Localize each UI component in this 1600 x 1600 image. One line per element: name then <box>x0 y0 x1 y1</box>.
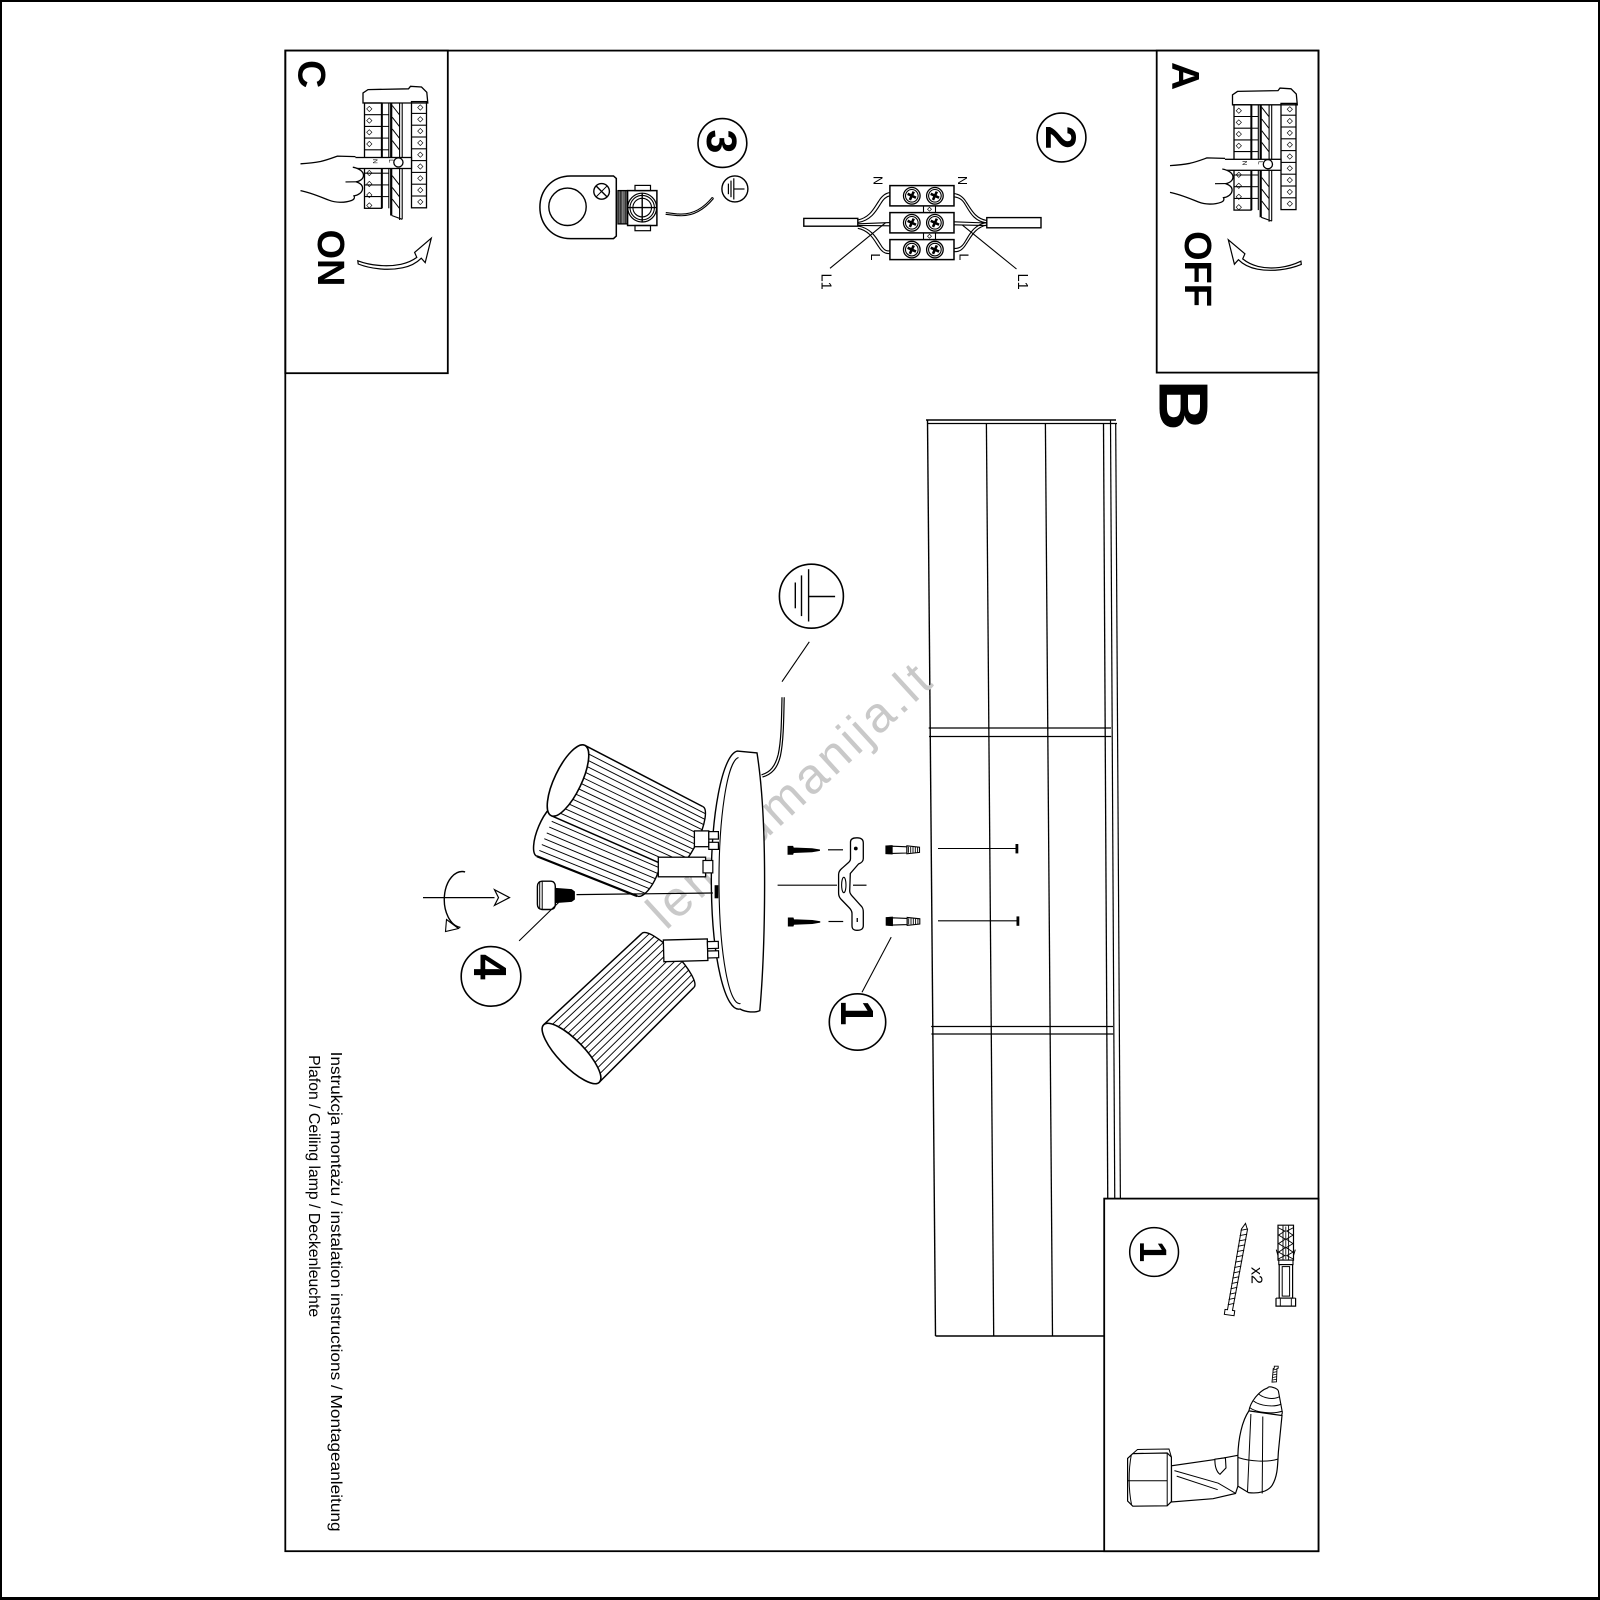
svg-text:OFF: OFF <box>1176 231 1218 307</box>
svg-text:L: L <box>868 254 882 261</box>
svg-text:N: N <box>871 176 885 185</box>
svg-text:Instrukcja montażu / instalati: Instrukcja montażu / instalation instruc… <box>327 1052 344 1532</box>
svg-text:lempumanija.lt: lempumanija.lt <box>636 650 945 939</box>
svg-text:ON: ON <box>309 230 351 287</box>
svg-text:B: B <box>1145 380 1223 431</box>
svg-text:N: N <box>955 176 969 185</box>
svg-text:2: 2 <box>1036 126 1084 150</box>
svg-text:4: 4 <box>464 954 516 980</box>
svg-text:L1: L1 <box>818 274 834 290</box>
svg-text:x2: x2 <box>1248 1267 1265 1284</box>
svg-text:N: N <box>1240 161 1247 166</box>
svg-text:Plafon / Ceiling lamp / Decken: Plafon / Ceiling lamp / Deckenleuchte <box>305 1055 322 1317</box>
svg-text:1: 1 <box>1131 1241 1173 1262</box>
svg-text:A: A <box>1163 62 1206 90</box>
svg-text:1: 1 <box>831 1000 883 1026</box>
svg-text:L: L <box>957 254 971 261</box>
svg-text:L1: L1 <box>1014 274 1030 290</box>
svg-text:3: 3 <box>697 130 745 154</box>
svg-text:L: L <box>387 159 394 163</box>
svg-text:N: N <box>371 159 378 164</box>
svg-text:L: L <box>1256 161 1263 165</box>
svg-text:C: C <box>290 60 333 88</box>
